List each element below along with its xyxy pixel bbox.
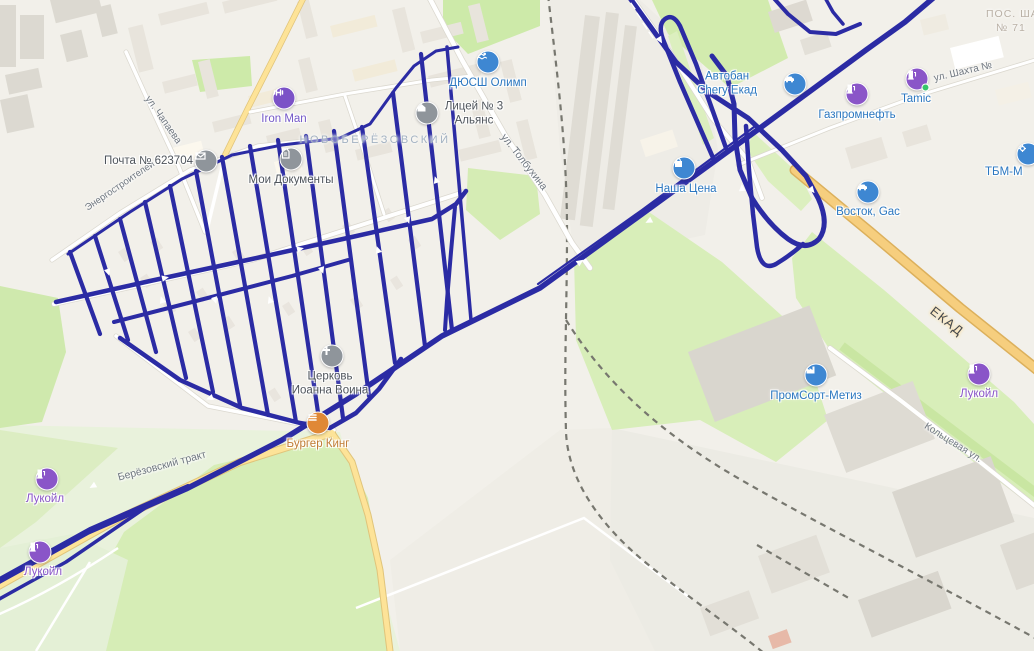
poi-tserkov[interactable] (321, 345, 344, 368)
poi-pochta-label: Почта № 623704 (104, 155, 193, 169)
district-label-n71: № 71 (996, 22, 1026, 34)
gear-icon (1017, 143, 1034, 166)
poi-tbm-label: ТБМ-М (985, 166, 1023, 180)
poi-licey-label: Лицей № 3Альянс (445, 100, 503, 127)
document-icon (280, 148, 303, 171)
fuel-pump-icon (968, 363, 991, 386)
poi-tserkov-label: ЦерковьИоанна Воина (292, 370, 369, 397)
poi-lukoil-west-upper[interactable] (36, 468, 59, 491)
poi-moi-dokumenty[interactable] (280, 148, 303, 171)
poi-iron-man[interactable] (273, 87, 296, 110)
poi-pochta[interactable] (195, 150, 218, 173)
poi-promsort[interactable] (805, 364, 828, 387)
poi-lukoil-east[interactable] (968, 363, 991, 386)
district-label-novoberezovsky: НОВОБЕРЁЗОВСКИЙ (300, 134, 451, 146)
fuel-pump-icon (846, 83, 869, 106)
poi-vostok-gac-label: Восток, Gac (836, 206, 900, 220)
shopping-bag-icon (673, 157, 696, 180)
poi-lukoil-west-lower[interactable] (29, 541, 52, 564)
poi-nasha-tsena-label: Наша Цена (655, 183, 716, 197)
map-canvas[interactable]: ул. Чапаева Энергостроителей ул. Толбухи… (0, 0, 1034, 651)
open-status-dot (922, 84, 930, 92)
dumbbell-icon (273, 87, 296, 110)
poi-promsort-label: ПромСорт-Метиз (770, 390, 862, 404)
poi-lukoil-west-upper-label: Лукойл (26, 493, 64, 507)
swimmer-icon (477, 51, 500, 74)
church-cross-icon (321, 345, 344, 368)
poi-lukoil-east-label: Лукойл (960, 388, 998, 402)
poi-avtoban[interactable] (784, 73, 807, 96)
poi-gazpromneft-label: Газпромнефть (818, 109, 895, 123)
poi-dyussh-olimp-label: ДЮСШ Олимп (449, 77, 526, 91)
poi-licey[interactable] (416, 102, 439, 125)
mail-icon (195, 150, 218, 173)
poi-burger-king-label: Бургер Кинг (287, 438, 350, 452)
burger-icon (307, 412, 330, 435)
poi-vostok-gac[interactable] (857, 181, 880, 204)
factory-icon (805, 364, 828, 387)
poi-moi-dokumenty-label: Мои Документы (248, 174, 333, 188)
poi-gazpromneft[interactable] (846, 83, 869, 106)
poi-burger-king[interactable] (307, 412, 330, 435)
poi-iron-man-label: Iron Man (261, 113, 306, 127)
poi-tbm[interactable] (1017, 143, 1034, 166)
poi-lukoil-west-lower-label: Лукойл (24, 566, 62, 580)
car-dealer-icon (857, 181, 880, 204)
school-icon (416, 102, 439, 125)
fuel-pump-icon (906, 68, 929, 91)
fuel-pump-icon (36, 468, 59, 491)
poi-tamic-label: Tamic (901, 93, 931, 107)
car-icon (784, 73, 807, 96)
poi-nasha-tsena[interactable] (673, 157, 696, 180)
poi-dyussh-olimp[interactable] (477, 51, 500, 74)
district-label-pos-sha: ПОС. ША (986, 8, 1034, 20)
fuel-pump-icon (29, 541, 52, 564)
map-artwork (0, 0, 1034, 651)
poi-avtoban-label: АвтобанChery Екад (697, 70, 757, 97)
poi-tamic[interactable] (906, 68, 929, 91)
